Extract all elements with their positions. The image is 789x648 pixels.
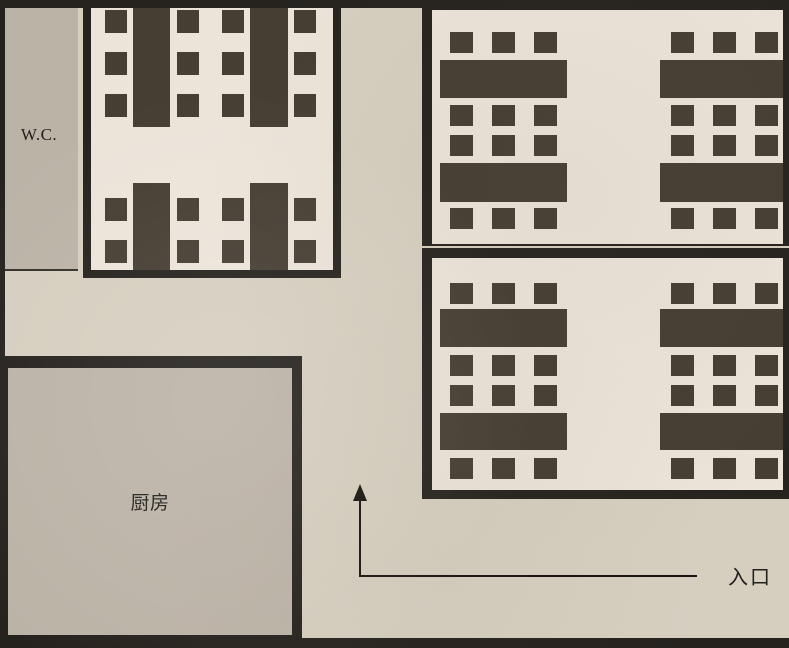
chair: [177, 52, 199, 75]
chair: [105, 198, 127, 221]
chair: [755, 208, 778, 229]
chair: [534, 32, 557, 53]
dining-table: [133, 183, 170, 270]
chair: [492, 385, 515, 406]
chair: [177, 198, 199, 221]
chair: [671, 385, 694, 406]
dining-table: [660, 413, 783, 450]
chair: [177, 240, 199, 263]
dining-table: [250, 8, 288, 127]
chair: [105, 240, 127, 263]
chair: [713, 32, 736, 53]
chair: [534, 355, 557, 376]
chair: [755, 135, 778, 156]
chair: [222, 198, 244, 221]
furniture-layer: [0, 0, 789, 648]
chair: [713, 355, 736, 376]
chair: [177, 94, 199, 117]
chair: [713, 135, 736, 156]
chair: [534, 283, 557, 304]
chair: [671, 32, 694, 53]
chair: [492, 32, 515, 53]
chair: [294, 198, 316, 221]
chair: [534, 385, 557, 406]
outer-wall-bottom: [0, 638, 789, 648]
chair: [294, 240, 316, 263]
chair: [294, 94, 316, 117]
chair: [294, 52, 316, 75]
chair: [671, 105, 694, 126]
chair: [492, 105, 515, 126]
chair: [450, 208, 473, 229]
dining-table: [133, 8, 170, 127]
chair: [450, 458, 473, 479]
chair: [450, 32, 473, 53]
chair: [492, 208, 515, 229]
chair: [177, 10, 199, 33]
chair: [534, 135, 557, 156]
chair: [755, 105, 778, 126]
chair: [534, 208, 557, 229]
chair: [492, 355, 515, 376]
dining-table: [660, 309, 783, 347]
outer-wall-top: [0, 0, 789, 8]
dining-table: [660, 163, 783, 202]
chair: [492, 458, 515, 479]
chair: [755, 385, 778, 406]
chair: [671, 283, 694, 304]
dining-table: [250, 183, 288, 270]
chair: [534, 458, 557, 479]
chair: [755, 355, 778, 376]
entrance-arrow-vertical-line: [359, 498, 361, 577]
dining-table: [440, 309, 567, 347]
chair: [755, 32, 778, 53]
chair: [713, 458, 736, 479]
entrance-arrow-horizontal-line: [359, 575, 697, 577]
entrance-label: 入口: [728, 561, 772, 590]
dining-table: [440, 60, 567, 98]
dining-table: [660, 60, 783, 98]
chair: [713, 283, 736, 304]
chair: [713, 208, 736, 229]
chair: [294, 10, 316, 33]
chair: [450, 105, 473, 126]
chair: [492, 283, 515, 304]
chair: [671, 355, 694, 376]
outer-wall-left: [0, 0, 5, 648]
chair: [222, 94, 244, 117]
chair: [222, 52, 244, 75]
chair: [450, 385, 473, 406]
chair: [534, 105, 557, 126]
chair: [105, 94, 127, 117]
chair: [450, 135, 473, 156]
chair: [450, 283, 473, 304]
chair: [105, 52, 127, 75]
chair: [105, 10, 127, 33]
chair: [713, 105, 736, 126]
chair: [755, 458, 778, 479]
dining-table: [440, 163, 567, 202]
chair: [222, 240, 244, 263]
chair: [222, 10, 244, 33]
chair: [671, 458, 694, 479]
chair: [755, 283, 778, 304]
chair: [713, 385, 736, 406]
chair: [450, 355, 473, 376]
restaurant-floor-plan: W.C. 厨房 入口: [0, 0, 789, 648]
chair: [671, 208, 694, 229]
chair: [492, 135, 515, 156]
chair: [671, 135, 694, 156]
dining-table: [440, 413, 567, 450]
